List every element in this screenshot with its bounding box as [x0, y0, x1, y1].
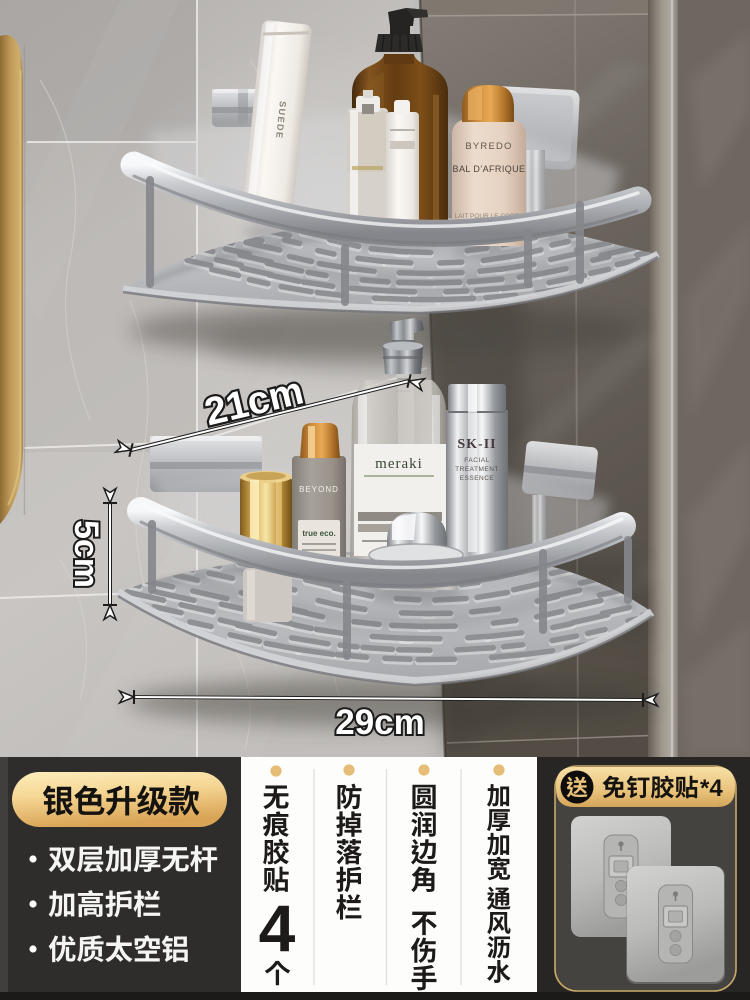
- svg-text:5cm: 5cm: [67, 520, 105, 588]
- svg-text:*4: *4: [700, 775, 723, 802]
- svg-text:TREATMENT: TREATMENT: [455, 466, 499, 473]
- svg-text:ESSENCE: ESSENCE: [460, 475, 495, 482]
- svg-text:BYREDO: BYREDO: [465, 141, 512, 152]
- svg-text:meraki: meraki: [375, 456, 423, 472]
- svg-text:FACIAL: FACIAL: [464, 457, 489, 464]
- svg-text:BAL D’AFRIQUE: BAL D’AFRIQUE: [453, 164, 526, 174]
- svg-text:SK-II: SK-II: [457, 437, 496, 452]
- svg-text:BEYOND: BEYOND: [299, 485, 339, 494]
- svg-text:true eco.: true eco.: [302, 529, 335, 538]
- svg-text:4: 4: [259, 891, 296, 965]
- svg-text:29cm: 29cm: [335, 703, 425, 742]
